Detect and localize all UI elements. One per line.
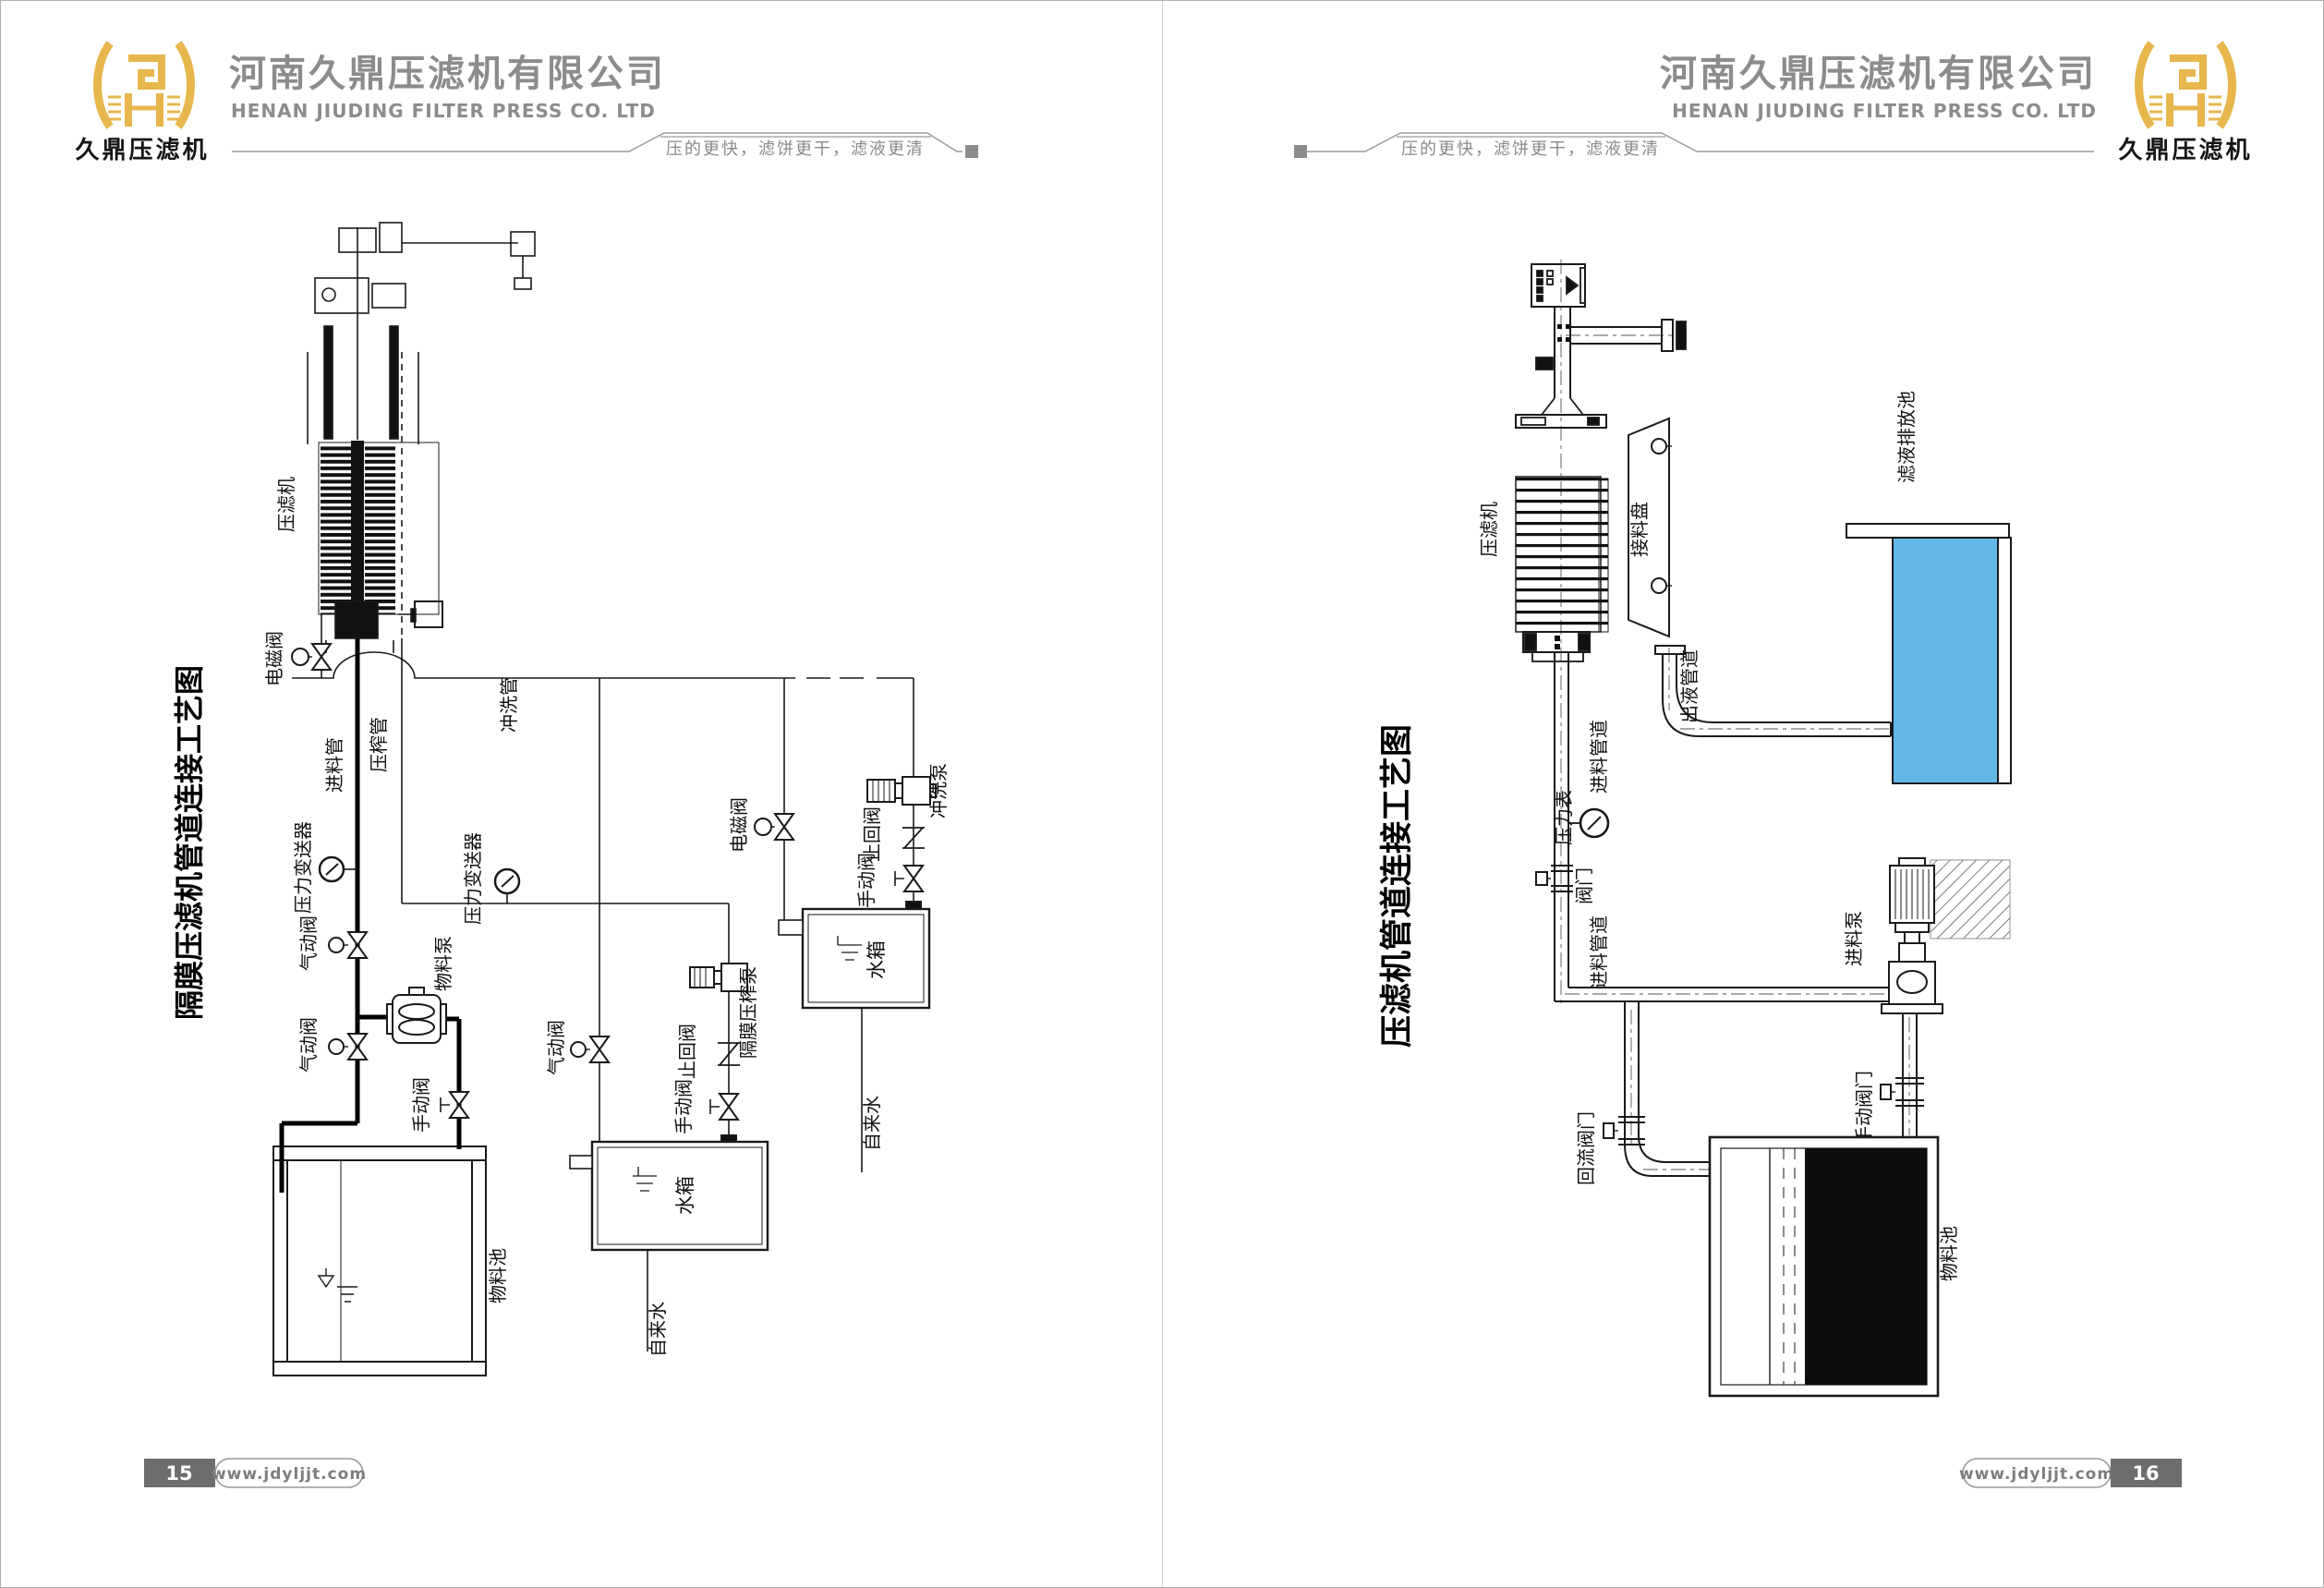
label-pressure-transmitter-2: 压力变送器: [462, 832, 484, 925]
label-check-valve-2: 止回阀: [676, 1024, 698, 1079]
label-tap-water-1: 自来水: [861, 1096, 883, 1151]
water-tank-lower: [570, 1142, 768, 1250]
label-return-valve: 回流阀门: [1575, 1111, 1597, 1185]
company-logo: [98, 43, 191, 127]
header-left: 久鼎压滤机 河南久鼎压滤机有限公司 HENAN JIUDING FILTER P…: [75, 43, 978, 164]
label-solenoid-valve-1: 电磁阀: [263, 631, 285, 686]
label-machine: 压滤机: [275, 477, 297, 532]
label-diaphragm-squeeze-pump: 隔膜压榨泵: [737, 966, 759, 1059]
footer-left: 15 www.jdyljjt.com: [144, 1459, 367, 1487]
label-manual-valve-1: 手动阀: [410, 1077, 432, 1133]
company-name-en: HENAN JIUDING FILTER PRESS CO. LTD: [231, 100, 656, 122]
label-solenoid-valve-2: 电磁阀: [728, 797, 750, 853]
label-pneumatic-valve-3: 气动阀: [545, 1020, 567, 1075]
label-pneumatic-valve-1: 气动阀: [297, 915, 320, 971]
label-flush-pipe: 冲洗管: [498, 677, 520, 733]
water-tank-upper: [779, 909, 929, 1008]
label-feed-pipe-1: 进料管道: [1588, 720, 1610, 794]
label-outlet-pipe: 出液管道: [1678, 649, 1701, 723]
material-pool: [1710, 1137, 1938, 1396]
material-pool: [273, 1146, 486, 1376]
diagram-title-right: 压滤机管道连接工艺图: [1379, 724, 1416, 1048]
label-filtrate-discharge-pool: 滤液排放池: [1895, 391, 1918, 483]
tagline: 压的更快，滤饼更干，滤液更清: [666, 139, 925, 159]
filtrate-discharge-pool: [1846, 524, 2011, 783]
company-name-en: HENAN JIUDING FILTER PRESS CO. LTD: [1672, 100, 2097, 122]
filter-press-machine: [308, 223, 535, 653]
page-number: 16: [2132, 1462, 2159, 1485]
label-water-tank-1: 水箱: [865, 940, 888, 979]
label-tap-water-2: 自来水: [647, 1302, 669, 1357]
page-16: 压的更快，滤饼更干，滤液更清 河南久鼎压滤机有限公司 HENAN JIUDING…: [1163, 1, 2324, 1588]
header-square: [965, 145, 978, 158]
website-url: www.jdyljjt.com: [212, 1465, 367, 1484]
label-pressure-gauge: 压力表: [1553, 790, 1575, 845]
label-feed-pipe-2: 进料管道: [1588, 915, 1610, 989]
header-right: 压的更快，滤饼更干，滤液更清 河南久鼎压滤机有限公司 HENAN JIUDING…: [1294, 43, 2253, 164]
label-material-pool: 物料池: [1938, 1226, 1960, 1281]
hatched-block: [1931, 860, 2010, 939]
label-valve: 阀门: [1573, 867, 1595, 904]
tagline: 压的更快，滤饼更干，滤液更清: [1401, 139, 1660, 159]
logo-caption: 久鼎压滤机: [75, 137, 209, 164]
centerlines: [1561, 260, 1909, 1170]
label-receiving-tray: 接料盘: [1628, 502, 1651, 557]
label-water-tank-2: 水箱: [674, 1176, 696, 1215]
label-machine: 压滤机: [1478, 502, 1500, 557]
label-manual-valve: 手动阀门: [1853, 1071, 1875, 1145]
label-squeeze-pipe: 压榨管: [368, 717, 390, 772]
label-manual-valve-3: 手动阀: [672, 1079, 695, 1134]
header-square: [1294, 145, 1307, 158]
diagram-title-left: 隔膜压滤机管道连接工艺图: [172, 665, 207, 1020]
label-pressure-transmitter-1: 压力变送器: [292, 821, 314, 914]
website-url: www.jdyljjt.com: [1959, 1465, 2114, 1484]
label-material-pump: 物料泵: [432, 936, 454, 991]
label-pneumatic-valve-2: 气动阀: [297, 1017, 320, 1073]
footer-right: www.jdyljjt.com 16: [1959, 1459, 2182, 1487]
label-flush-pump: 冲洗泵: [927, 763, 950, 818]
logo-caption: 久鼎压滤机: [2118, 137, 2252, 164]
company-name-cn: 河南久鼎压滤机有限公司: [1660, 53, 2097, 95]
label-manual-valve-2: 手动阀: [855, 853, 878, 908]
brochure-spread: 久鼎压滤机 河南久鼎压滤机有限公司 HENAN JIUDING FILTER P…: [0, 0, 2324, 1588]
page-number: 15: [165, 1462, 192, 1485]
company-logo: [2139, 43, 2233, 127]
page-15: 久鼎压滤机 河南久鼎压滤机有限公司 HENAN JIUDING FILTER P…: [1, 1, 1163, 1588]
label-feed-pipe: 进料管: [323, 737, 345, 793]
label-material-pool: 物料池: [487, 1248, 509, 1303]
label-feed-pump: 进料泵: [1843, 911, 1865, 966]
company-name-cn: 河南久鼎压滤机有限公司: [229, 53, 666, 95]
